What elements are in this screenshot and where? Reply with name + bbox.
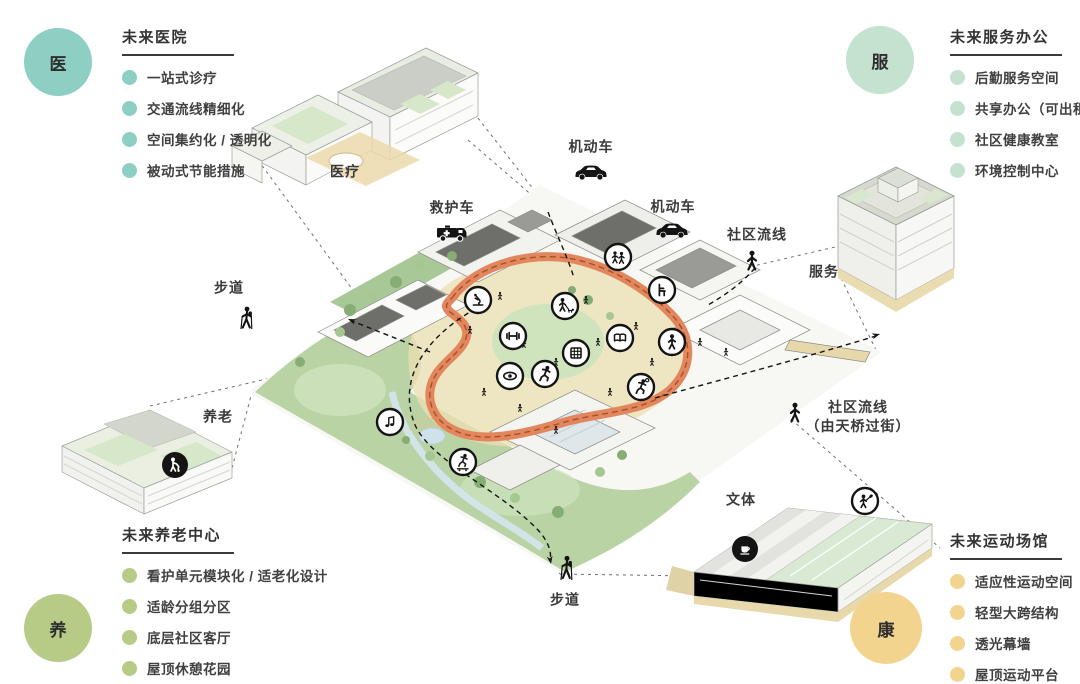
bullet-dot [950,667,965,682]
title-underline [950,558,1062,560]
feature-item: 后勤服务空间 [950,67,1080,87]
label-footpath-bottom: 步道 [550,591,580,610]
bullet-dot [950,70,965,85]
feature-item: 共享办公（可出租） [950,98,1080,118]
panel-sports: 未来运动场馆 适应性运动空间 轻型大跨结构 透光幕墙 屋顶运动平台 [950,530,1073,684]
feature-item: 交通流线精细化 [122,98,272,118]
chair-icon [649,277,675,303]
feature-item: 看护单元模块化 / 适老化设计 [122,565,328,585]
dog-walking-icon [552,293,578,319]
bullet-dot [950,132,965,147]
panel-service: 未来服务办公 后勤服务空间 共享办公（可出租） 社区健康教室 环境控制中心 [950,26,1080,180]
feature-item: 空间集约化 / 透明化 [122,129,272,149]
hospital-badge: 医 [24,28,92,96]
people-icon [605,244,631,270]
feature-item: 社区健康教室 [950,129,1080,149]
eye-icon [497,363,523,389]
masterplan-infographic: { "panels": { "hospital": { "badge": "医"… [0,0,1080,672]
car-icon [574,164,608,181]
window-grid-icon [563,340,589,366]
runner-icon [532,361,558,387]
label-medical: 医疗 [330,163,360,182]
microscope-icon [465,287,491,313]
feature-item: 适龄分组分区 [122,596,328,616]
panel-title-hospital: 未来医院 [122,26,272,47]
label-ambulance: 救护车 [430,199,475,218]
pedestrian-icon [744,250,760,274]
panel-title-elderly: 未来养老中心 [122,524,328,545]
skateboard-icon [450,449,476,475]
hiker-icon [236,306,256,332]
bullet-dot [122,70,137,85]
person-icon [659,329,685,355]
label-community-flow-bridge: 社区流线 （由天桥过街） [806,398,911,436]
table-tennis-player-icon [852,488,878,514]
panel-title-service: 未来服务办公 [950,26,1080,47]
bullet-dot [122,630,137,645]
bullet-dot [122,101,137,116]
bullet-dot [122,661,137,676]
coffee-icon [732,536,758,562]
label-service: 服务 [809,263,839,282]
bullet-dot [122,599,137,614]
feature-item: 环境控制中心 [950,160,1080,180]
bullet-dot [950,605,965,620]
sports-badge: 康 [850,592,922,664]
feature-item: 透光幕墙 [950,633,1073,653]
feature-item: 一站式诊疗 [122,67,272,87]
title-underline [122,552,234,554]
book-icon [607,325,633,351]
service-building [838,167,954,312]
feature-item: 屋顶休憩花园 [122,658,328,678]
feature-item: 被动式节能措施 [122,160,272,180]
hiker-icon [556,555,576,583]
bullet-dot [950,163,965,178]
bullet-dot [950,636,965,651]
music-icon [377,409,403,435]
gym-dumbbell-icon [500,323,526,349]
panel-hospital: 未来医院 一站式诊疗 交通流线精细化 空间集约化 / 透明化 被动式节能措施 [122,26,272,180]
elderly-badge: 养 [24,594,92,662]
pedestrian-icon [787,402,803,426]
bullet-dot [122,568,137,583]
title-underline [950,54,1062,56]
bullet-dot [122,132,137,147]
feature-item: 轻型大跨结构 [950,602,1073,622]
feature-item: 底层社区客厅 [122,627,328,647]
stroller-icon [162,452,188,478]
car-icon [655,222,689,239]
panel-title-sports: 未来运动场馆 [950,530,1073,551]
label-community-flow-top: 社区流线 [727,226,787,245]
feature-item: 适应性运动空间 [950,571,1073,591]
label-elderly: 养老 [203,408,233,427]
service-badge: 服 [846,26,914,94]
ambulance-icon [436,223,468,243]
label-culture-sports: 文体 [726,491,756,510]
bullet-dot [950,101,965,116]
bullet-dot [122,163,137,178]
panel-elderly: 未来养老中心 看护单元模块化 / 适老化设计 适龄分组分区 底层社区客厅 屋顶休… [122,524,328,678]
label-motor-vehicle-right: 机动车 [651,198,696,217]
label-motor-vehicle-top: 机动车 [569,138,614,157]
label-footpath-left: 步道 [214,279,244,298]
feature-item: 屋顶运动平台 [950,664,1073,684]
basketball-player-icon [628,374,654,400]
bullet-dot [950,574,965,589]
title-underline [122,54,234,56]
